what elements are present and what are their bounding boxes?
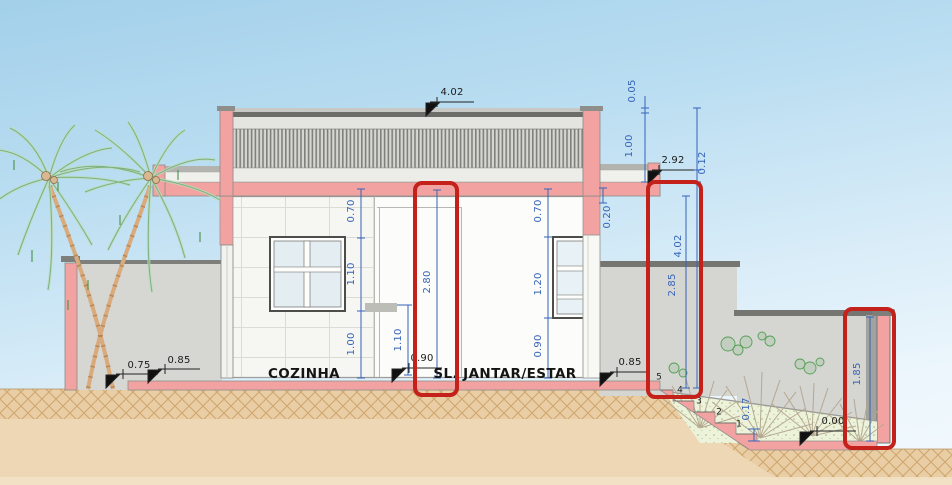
dim-label-kitchen-window: 1.10	[347, 262, 357, 285]
step-number-2: 2	[716, 409, 722, 418]
floor-slab	[128, 381, 660, 390]
dim-label-kitchen-above-window: 0.70	[347, 199, 357, 222]
dim-label-roof-lip: 0.05	[628, 79, 638, 102]
dim-label-slab-edge: 0.12	[698, 151, 708, 174]
step-number-3: 3	[696, 398, 702, 407]
dim-label-living-sill: 0.90	[534, 334, 544, 357]
dim-label-counter-height: 1.10	[394, 328, 404, 351]
left-wall	[220, 196, 233, 378]
highlight-box-fence-height	[843, 307, 896, 450]
dim-label-living-above-window: 0.70	[534, 199, 544, 222]
level-label-terrace-right: 0.85	[618, 358, 641, 368]
dim-label-beam-right: 0.20	[603, 205, 613, 228]
section-scene	[0, 0, 952, 485]
level-label-canopy-right: 2.92	[661, 156, 684, 166]
dim-label-roof-band: 1.00	[625, 134, 635, 157]
level-label-yard-front: 0.75	[127, 361, 150, 371]
right-wall	[583, 196, 600, 378]
level-label-yard-terrace: 0.85	[167, 356, 190, 366]
living-opening	[583, 235, 600, 378]
level-label-roof-top: 4.02	[440, 88, 463, 98]
roof-tile-hatch	[233, 129, 583, 168]
highlight-box-ceiling-height	[413, 181, 459, 397]
step-number-1: 1	[736, 421, 742, 430]
room-label-kitchen: COZINHA	[268, 366, 340, 382]
parapet-left	[220, 110, 233, 196]
dim-label-garden-step: 0.17	[742, 397, 752, 420]
highlight-box-right-heights	[646, 180, 703, 399]
level-label-garden-floor: 0.00	[821, 417, 844, 427]
architectural-section-drawing: 0.70 1.10 1.00 1.10 2.80 0.70 1.20 0.90 …	[0, 0, 952, 485]
kitchen-window	[270, 237, 345, 311]
counter-ledge	[365, 303, 397, 312]
dim-label-kitchen-below-window: 1.00	[347, 332, 357, 355]
dim-label-living-window: 1.20	[534, 272, 544, 295]
parapet-right	[583, 110, 600, 196]
